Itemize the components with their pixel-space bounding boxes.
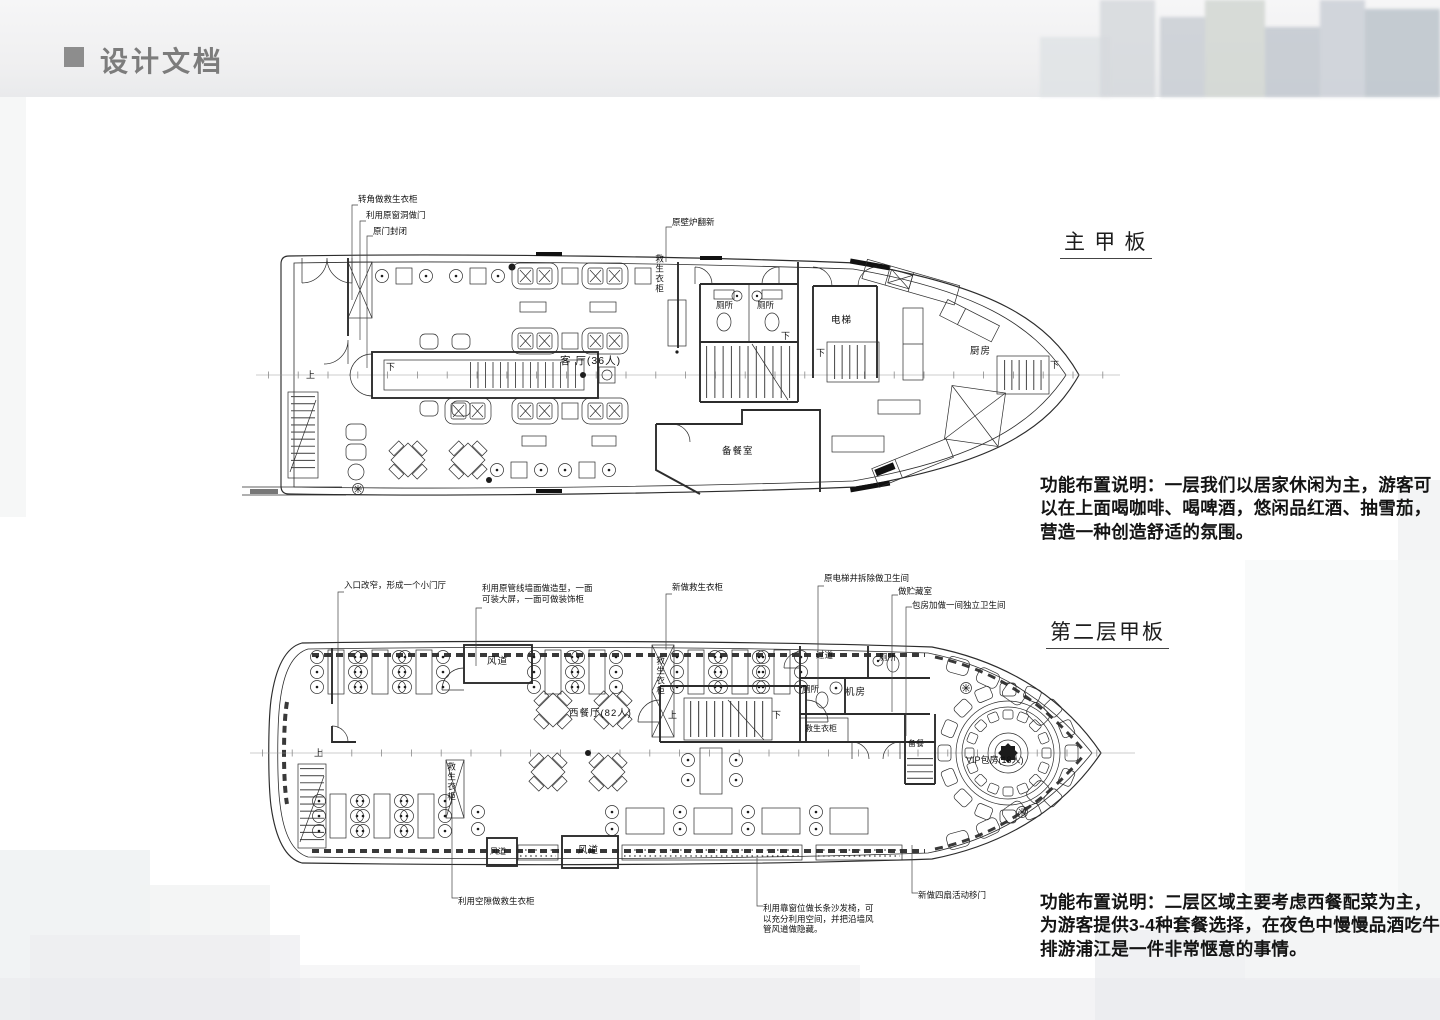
deck1-title: 主 甲 板 bbox=[1060, 226, 1152, 259]
slide: 设计文档 bbox=[0, 0, 1440, 1020]
deck1-annotation-door-closed: 原门封闭 bbox=[373, 226, 407, 237]
deck1-label-pantry: 备餐室 bbox=[722, 446, 754, 458]
deck2-title: 第二层甲板 bbox=[1046, 616, 1169, 649]
deck2-label-duct-b1: 风道 bbox=[490, 847, 506, 857]
deck2-annotation-sliding-doors: 新做四扇活动移门 bbox=[918, 890, 986, 901]
deck1-annotation-fireplace: 原壁炉翻新 bbox=[672, 217, 715, 228]
deck1-marker-down-1: 下 bbox=[386, 362, 395, 373]
deck2-drawing bbox=[250, 586, 1135, 906]
deck2-label-duct-top: 风道 bbox=[487, 656, 508, 668]
deck1-label-life-jacket: 救生衣柜 bbox=[654, 254, 665, 294]
deck2-label-corridor: 过道 bbox=[816, 650, 833, 661]
deck2-annotation-entrance: 入口改窄，形成一个小门厅 bbox=[344, 580, 446, 591]
deck1-marker-down-2: 下 bbox=[781, 331, 790, 342]
deck2-function-note: 功能布置说明：二层区域主要考虑西餐配菜为主， 为游客提供3-4种套餐选择，在夜色… bbox=[1040, 891, 1440, 961]
deck1-annotation-corner-cabinet: 转角做救生衣柜 bbox=[358, 194, 418, 205]
deck1-annotation-window-door: 利用原窗洞做门 bbox=[366, 210, 426, 221]
deck2-annotation-private-bathroom: 包房加做一间独立卫生间 bbox=[912, 600, 1006, 611]
deck2-label-life-jacket-2: 救生衣柜 bbox=[446, 762, 457, 802]
deck1-function-note: 功能布置说明：一层我们以居家休闲为主，游客可 以在上面喝咖啡、喝啤酒，悠闲品红酒… bbox=[1040, 474, 1440, 544]
deck1-label-toilet-2: 厕所 bbox=[757, 300, 774, 311]
deck2-marker-up-stair: 上 bbox=[668, 710, 677, 721]
deck2-label-restaurant: 西餐厅(82人) bbox=[569, 708, 632, 720]
deck2-marker-up-left: 上 bbox=[314, 748, 323, 759]
deck2-label-machine-room: 机房 bbox=[845, 687, 866, 699]
deck2-label-life-jacket-1: 救生衣柜 bbox=[655, 656, 666, 696]
deck2-label-vip-room: VIP包房(18人) bbox=[966, 755, 1024, 766]
deck1-label-elevator: 电梯 bbox=[831, 315, 852, 327]
deck2-annotation-storage: 做贮藏室 bbox=[898, 586, 932, 597]
deck1-label-kitchen: 厨房 bbox=[970, 346, 991, 358]
deck2-annotation-pipeline-wall: 利用原管线墙面做造型，一面 可装大屏，一面可做装饰柜 bbox=[482, 583, 593, 604]
deck1-marker-up: 上 bbox=[306, 370, 315, 381]
deck1-marker-down-3: 下 bbox=[816, 348, 825, 359]
deck1-label-living-room: 客 厅(36人) bbox=[560, 355, 621, 368]
deck2-label-toilet-mid: 厕所 bbox=[802, 684, 819, 695]
deck2-label-toilet-tr: 厕所 bbox=[879, 652, 896, 663]
deck2-annotation-elevator-shaft: 原电梯井拆除做卫生间 bbox=[824, 573, 909, 584]
deck2-annotation-gap-cabinet: 利用空隙做救生衣柜 bbox=[458, 896, 535, 907]
deck2-label-food-prep: 备餐 bbox=[908, 739, 924, 749]
deck1-label-toilet-1: 厕所 bbox=[716, 300, 733, 311]
deck1-marker-down-4: 下 bbox=[1050, 360, 1059, 371]
deck2-label-life-jacket-box: 救生衣柜 bbox=[805, 724, 837, 734]
deck2-annotation-window-sofa: 利用靠窗位做长条沙发椅，可 以充分利用空间，并把沿墙风 管风道做隐藏。 bbox=[763, 903, 874, 935]
deck2-marker-down-stair: 下 bbox=[772, 710, 781, 721]
deck2-label-duct-b2: 风道 bbox=[578, 845, 599, 857]
deck2-annotation-new-life-cabinet: 新做救生衣柜 bbox=[672, 582, 723, 593]
